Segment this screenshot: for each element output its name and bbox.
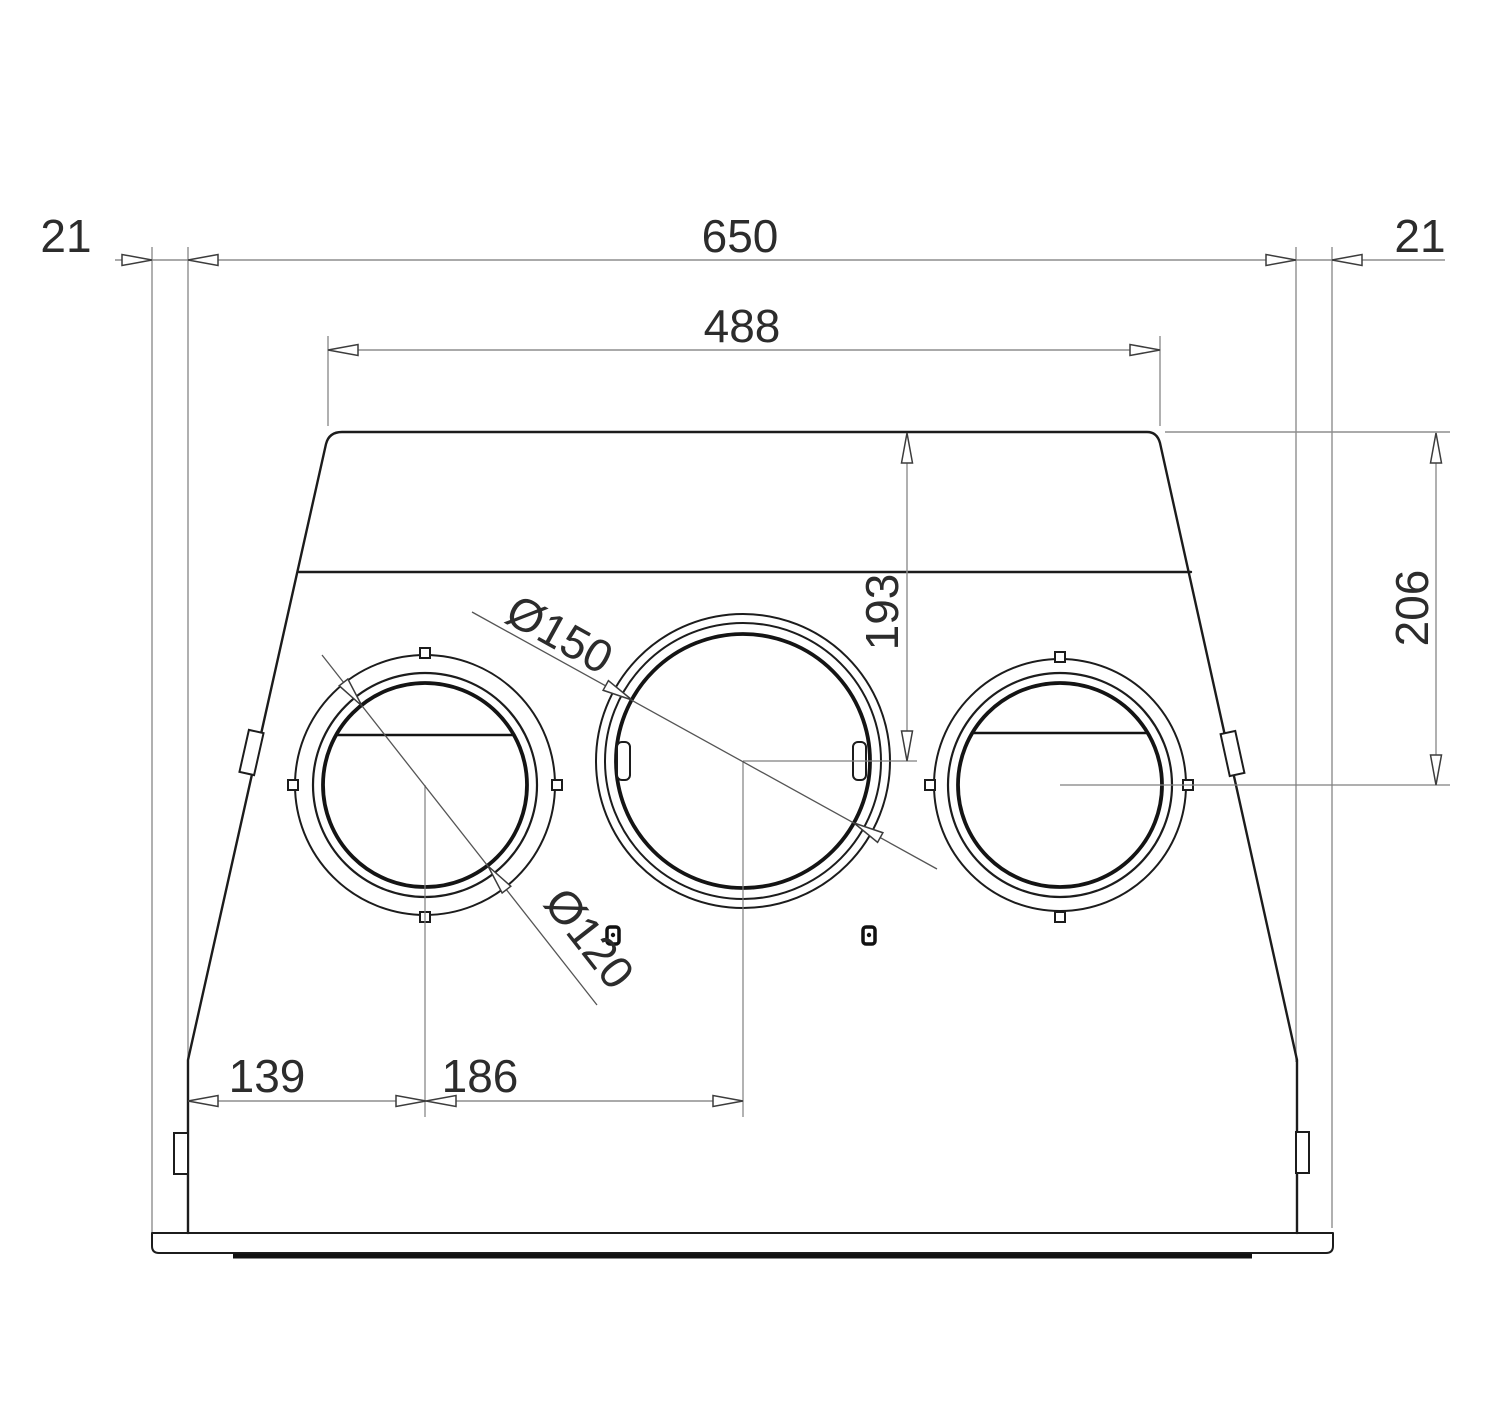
base-plate-outline	[152, 1233, 1333, 1253]
right-spigot-tab-bottom	[1055, 912, 1065, 922]
mid-depth-dimension: 193	[856, 433, 913, 761]
middle-spigot	[596, 614, 917, 1117]
dim-label-spacing: 186	[442, 1050, 519, 1102]
left-edge-latch	[174, 1133, 188, 1174]
hood-body	[174, 432, 1309, 1233]
arrowhead	[1266, 255, 1296, 266]
left-spigot	[288, 648, 562, 1117]
leader-line-120	[322, 655, 597, 1005]
dimension-drawing: 21 650 21 488	[0, 0, 1500, 1427]
side-diameter-callout: Ø120	[322, 655, 645, 1005]
arrowhead	[188, 1096, 218, 1107]
arrowhead	[328, 345, 358, 356]
middle-spigot-clip-left	[617, 742, 630, 780]
arrowhead	[122, 255, 152, 266]
top-width-dimension: 488	[328, 300, 1160, 426]
dim-label-left-offset: 139	[229, 1050, 306, 1102]
side-depth-dimension: 206	[1165, 432, 1450, 785]
dim-label-overhang-left: 21	[40, 210, 91, 262]
dim-label-top-width: 488	[704, 300, 781, 352]
left-slope-latch	[239, 730, 263, 775]
dim-label-side-diameter: Ø120	[534, 878, 644, 999]
right-edge-latch	[1296, 1132, 1309, 1173]
arrowhead	[1332, 255, 1362, 266]
right-spigot	[925, 652, 1450, 922]
right-spigot-tab-left	[925, 780, 935, 790]
arrowhead	[188, 255, 218, 266]
base-plate	[152, 1233, 1333, 1256]
arrowhead	[1130, 345, 1160, 356]
screw-details	[607, 927, 875, 944]
arrowhead	[396, 1096, 426, 1107]
dim-label-overhang-right: 21	[1394, 210, 1445, 262]
arrowhead	[902, 731, 913, 761]
dim-label-mid-diameter: Ø150	[498, 584, 622, 684]
arrowhead	[713, 1096, 743, 1107]
dim-label-mid-depth: 193	[856, 574, 908, 651]
left-spigot-tab-right	[552, 780, 562, 790]
dim-label-overall-width: 650	[702, 210, 779, 262]
left-spigot-tab-top	[420, 648, 430, 658]
arrowhead	[1431, 433, 1442, 463]
technical-drawing-canvas: 21 650 21 488	[0, 0, 1500, 1427]
arrowhead	[1431, 755, 1442, 785]
arrowhead	[902, 433, 913, 463]
right-spigot-tab-top	[1055, 652, 1065, 662]
screw-dot	[867, 933, 871, 937]
right-slope-latch	[1221, 731, 1245, 776]
dim-label-side-depth: 206	[1386, 570, 1438, 647]
bottom-dimension-chain: 139 186	[188, 1050, 743, 1107]
left-spigot-tab-left	[288, 780, 298, 790]
